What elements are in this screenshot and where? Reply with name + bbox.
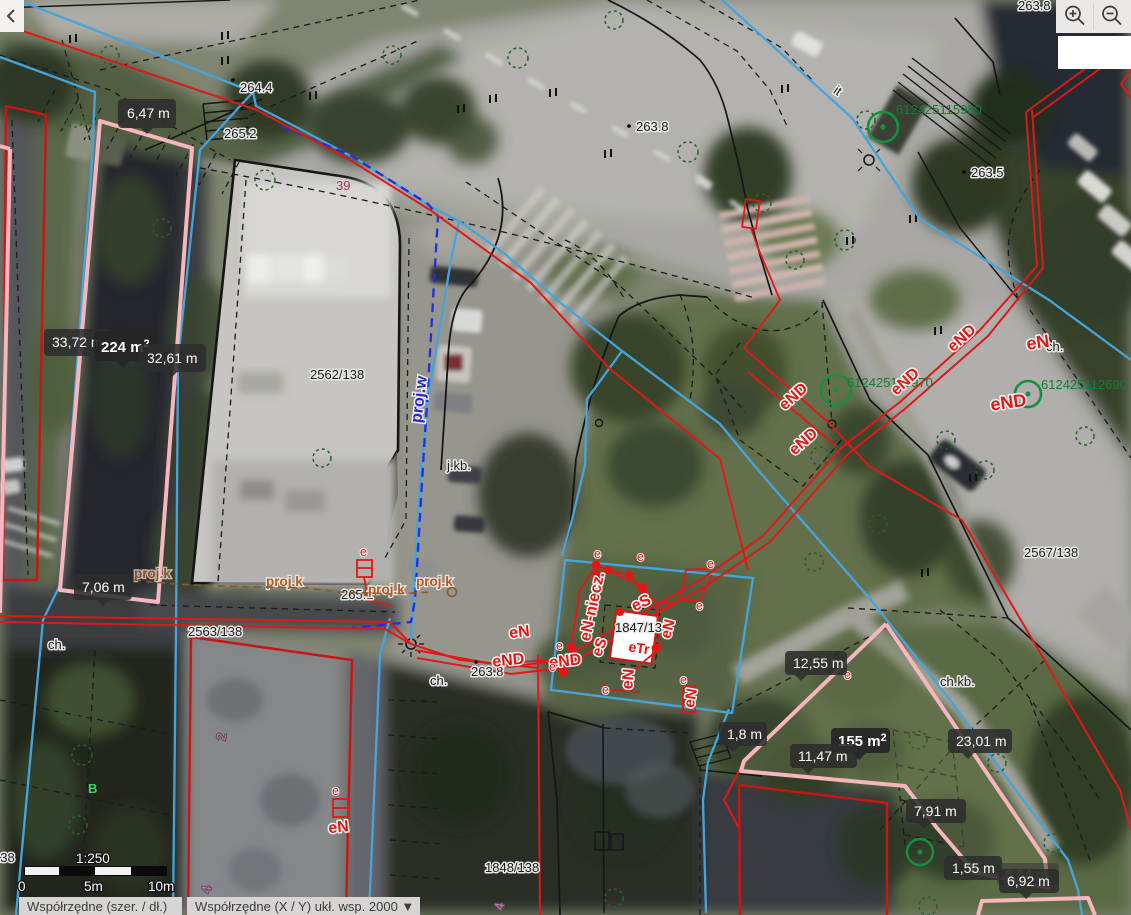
svg-text:ch.: ch. (48, 637, 65, 652)
svg-text:e: e (637, 550, 644, 564)
svg-text:proj.k: proj.k (134, 566, 171, 581)
svg-text:eND: eND (492, 651, 526, 671)
svg-text:e: e (332, 784, 339, 798)
svg-text:6,92 m: 6,92 m (1007, 873, 1050, 889)
svg-text:10m: 10m (148, 879, 174, 894)
svg-text:e: e (594, 547, 601, 561)
svg-text:2563/138: 2563/138 (188, 624, 242, 639)
svg-text:eN: eN (508, 623, 530, 642)
svg-text:j.kb.: j.kb. (446, 458, 471, 473)
svg-text:1:250: 1:250 (76, 851, 110, 866)
svg-text:1,55 m: 1,55 m (952, 860, 995, 876)
svg-text:32,61 m: 32,61 m (147, 350, 198, 366)
svg-text:263.8: 263.8 (1018, 0, 1051, 13)
svg-text:e: e (556, 639, 563, 653)
svg-text:612425112690: 612425112690 (1041, 377, 1127, 392)
svg-text:e: e (696, 599, 703, 613)
svg-text:1,8 m: 1,8 m (727, 726, 762, 742)
svg-text:39: 39 (336, 178, 350, 193)
svg-text:e: e (707, 557, 714, 571)
svg-text:12,55 m: 12,55 m (793, 655, 844, 671)
svg-text:ch.: ch. (430, 673, 447, 688)
svg-text:11,47 m: 11,47 m (798, 748, 848, 764)
svg-text:2567/138: 2567/138 (1024, 545, 1078, 560)
svg-text:263.8: 263.8 (636, 119, 669, 134)
svg-text:e: e (360, 545, 367, 559)
svg-text:263.5: 263.5 (971, 165, 1004, 180)
svg-text:23,01 m: 23,01 m (956, 733, 1007, 749)
svg-text:eN: eN (681, 687, 701, 709)
svg-text:265.2: 265.2 (224, 126, 257, 141)
svg-text:6,47 m: 6,47 m (127, 105, 170, 121)
svg-text:7,06 m: 7,06 m (82, 579, 125, 595)
svg-text:eN: eN (1025, 331, 1051, 354)
svg-text:612425115980: 612425115980 (896, 102, 982, 117)
svg-text:2562/138: 2562/138 (310, 367, 364, 382)
svg-text:Współrzędne (szer. / dł.): Współrzędne (szer. / dł.) (27, 899, 167, 914)
svg-text:138: 138 (0, 850, 15, 865)
svg-text:7,91 m: 7,91 m (914, 803, 957, 819)
svg-text:eN: eN (328, 818, 350, 837)
svg-text:proj.k: proj.k (416, 574, 453, 589)
svg-text:proj.k: proj.k (368, 582, 405, 597)
svg-text:eTr: eTr (628, 638, 652, 657)
svg-text:ch.kb.: ch.kb. (940, 674, 975, 689)
svg-text:e: e (549, 660, 556, 674)
svg-text:5m: 5m (84, 879, 103, 894)
svg-text:1848/138: 1848/138 (485, 860, 539, 875)
svg-text:Współrzędne (X / Y) ukł. wsp.: Współrzędne (X / Y) ukł. wsp. 2000 ▼ (195, 899, 414, 914)
svg-text:0: 0 (18, 879, 26, 894)
svg-text:e: e (680, 673, 687, 687)
svg-text:264.4: 264.4 (240, 80, 273, 95)
svg-text:e: e (602, 683, 609, 697)
svg-text:B: B (88, 781, 97, 796)
svg-text:eN: eN (619, 668, 638, 690)
